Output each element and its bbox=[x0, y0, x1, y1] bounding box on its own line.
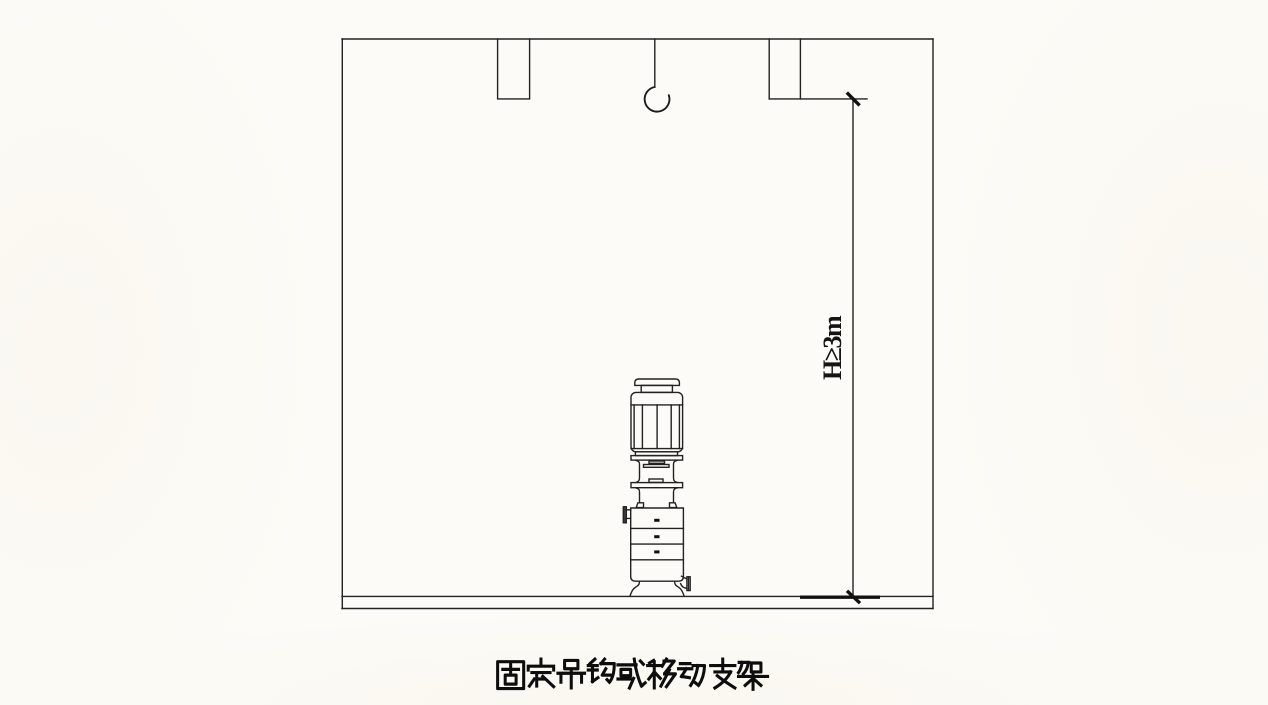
svg-text:H≥3m: H≥3m bbox=[818, 315, 847, 380]
